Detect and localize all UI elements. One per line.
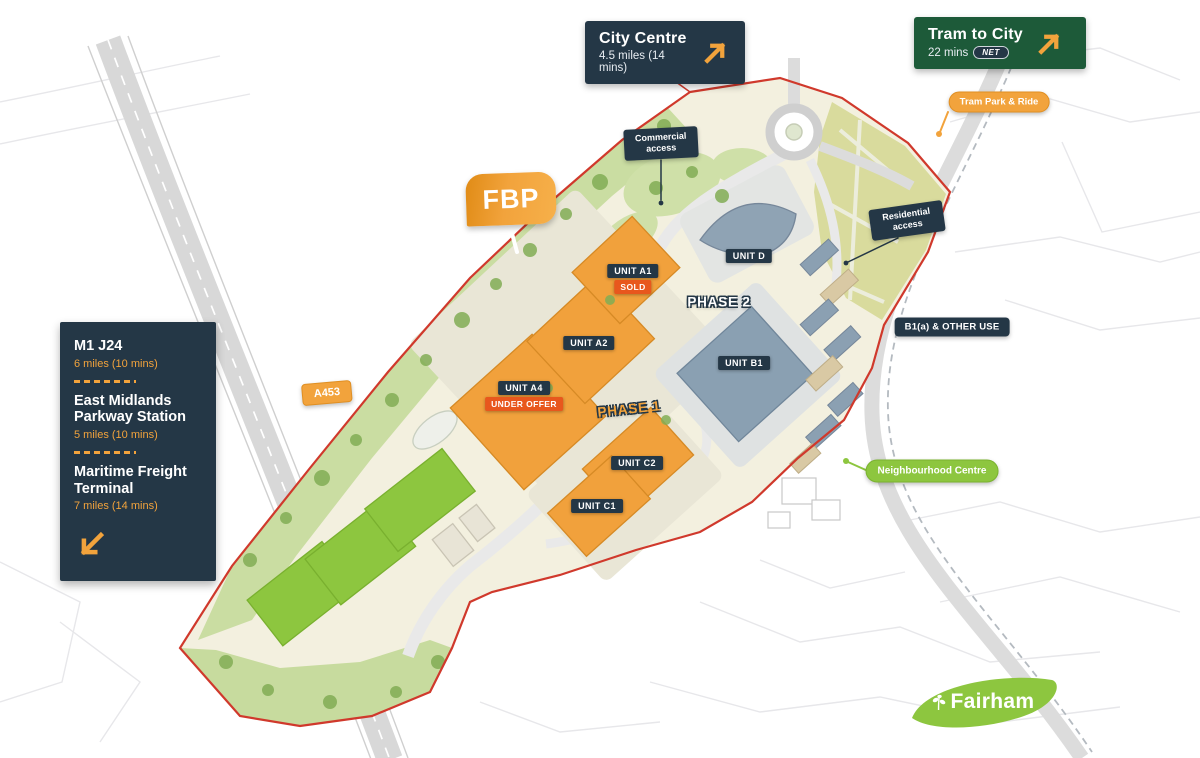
distance-item-parkway: East Midlands Parkway Station 5 miles (1… bbox=[74, 393, 202, 441]
tram-to-city-time: 22 mins bbox=[928, 47, 968, 59]
a453-road-label: A453 bbox=[301, 380, 353, 406]
unit-c2-tag: UNIT C2 bbox=[611, 456, 663, 470]
distance-title: Maritime Freight Terminal bbox=[74, 464, 202, 497]
distance-title: East Midlands Parkway Station bbox=[74, 393, 202, 426]
unit-c1-label: UNIT C1 bbox=[571, 499, 623, 513]
unit-a4-label: UNIT A4 UNDER OFFER bbox=[485, 381, 563, 411]
arrow-up-right-icon bbox=[701, 37, 731, 67]
tram-to-city-badge: Tram to City 22 mins NET bbox=[914, 17, 1086, 69]
arrow-up-right-icon bbox=[1035, 28, 1065, 58]
distance-title: M1 J24 bbox=[74, 338, 202, 355]
city-centre-badge: City Centre 4.5 miles (14 mins) bbox=[585, 21, 745, 84]
commercial-access-label: Commercial access bbox=[623, 126, 698, 160]
unit-a2-label: UNIT A2 bbox=[563, 336, 614, 350]
unit-a2-tag: UNIT A2 bbox=[563, 336, 614, 350]
roundabout bbox=[770, 108, 818, 156]
fairham-logo: Fairham bbox=[906, 670, 1064, 734]
unit-a4-tag: UNIT A4 bbox=[498, 381, 549, 395]
existing-buildings bbox=[768, 478, 840, 528]
site-plan-canvas: City Centre 4.5 miles (14 mins) Tram to … bbox=[0, 0, 1200, 758]
distance-subtitle: 7 miles (14 mins) bbox=[74, 500, 202, 512]
unit-a1-status: SOLD bbox=[614, 280, 651, 294]
divider bbox=[74, 380, 136, 383]
city-centre-distance: 4.5 miles (14 mins) bbox=[599, 50, 689, 74]
fbp-logo: FBP bbox=[465, 171, 557, 226]
arrow-down-left-icon bbox=[74, 528, 202, 567]
divider bbox=[74, 451, 136, 454]
net-logo: NET bbox=[973, 46, 1009, 59]
distance-item-m1: M1 J24 6 miles (10 mins) bbox=[74, 338, 202, 370]
leaf-sprig-icon bbox=[932, 694, 947, 711]
distance-panel: M1 J24 6 miles (10 mins) East Midlands P… bbox=[60, 322, 216, 581]
unit-b1-label: UNIT B1 bbox=[718, 356, 770, 370]
distance-subtitle: 5 miles (10 mins) bbox=[74, 429, 202, 441]
distance-item-freight: Maritime Freight Terminal 7 miles (14 mi… bbox=[74, 464, 202, 512]
city-centre-title: City Centre bbox=[599, 30, 689, 48]
unit-d-label: UNIT D bbox=[726, 249, 772, 263]
distance-subtitle: 6 miles (10 mins) bbox=[74, 358, 202, 370]
unit-a4-status: UNDER OFFER bbox=[485, 397, 563, 411]
unit-c2-label: UNIT C2 bbox=[611, 456, 663, 470]
unit-d-tag: UNIT D bbox=[726, 249, 772, 263]
fbp-logo-text: FBP bbox=[482, 183, 540, 216]
phase-2-label: PHASE 2 bbox=[687, 295, 750, 310]
unit-a1-label: UNIT A1 SOLD bbox=[607, 264, 658, 294]
neighbourhood-centre-label: Neighbourhood Centre bbox=[866, 460, 999, 483]
unit-a1-tag: UNIT A1 bbox=[607, 264, 658, 278]
b1a-other-use-label: B1(a) & OTHER USE bbox=[895, 318, 1010, 337]
tram-to-city-title: Tram to City bbox=[928, 26, 1023, 44]
tram-park-ride-label: Tram Park & Ride bbox=[949, 92, 1050, 113]
unit-c1-tag: UNIT C1 bbox=[571, 499, 623, 513]
fairham-logo-text: Fairham bbox=[951, 690, 1035, 714]
unit-b1-tag: UNIT B1 bbox=[718, 356, 770, 370]
